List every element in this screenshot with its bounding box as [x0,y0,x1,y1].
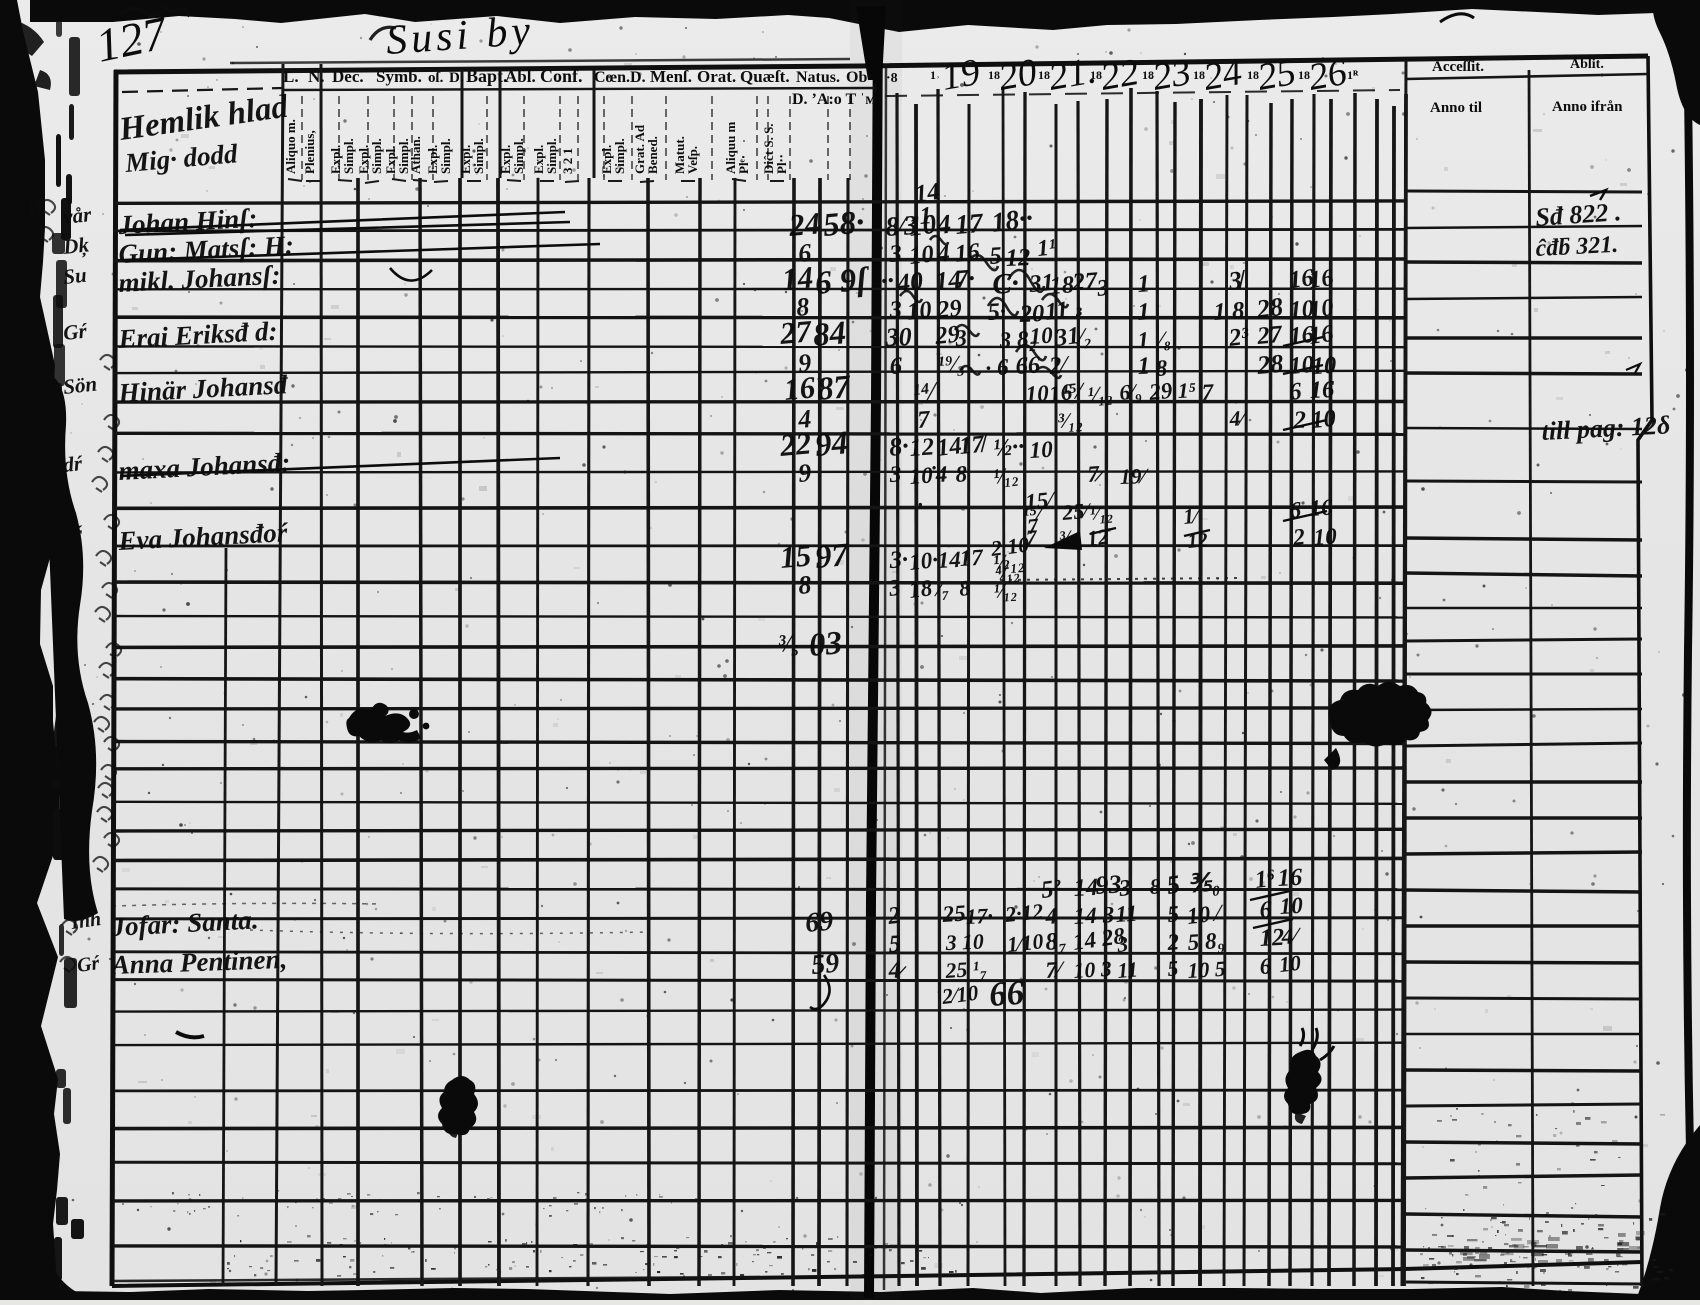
svg-text:17: 17 [959,545,985,572]
svg-text:Orat.: Orat. [697,67,736,86]
svg-text:16: 16 [1309,494,1334,522]
svg-text:26: 26 [1305,51,1350,99]
svg-text:Bapt.: Bapt. [466,66,508,86]
svg-text:10 5: 10 5 [1187,957,1227,983]
svg-text:18··: 18·· [990,201,1035,237]
svg-text:17: 17 [954,207,985,240]
svg-text:14: 14 [781,259,815,297]
svg-text:69: 69 [804,906,835,939]
svg-text:66: 66 [988,973,1026,1014]
svg-text:10: 10 [1310,405,1337,434]
svg-text:27: 27 [1255,321,1285,350]
svg-text:10: 10 [1029,437,1054,464]
svg-text:4: 4 [1044,903,1058,930]
svg-text:³⁄₁₂: ³⁄₁₂ [1057,408,1083,433]
svg-text:Dec.: Dec. [332,67,364,86]
svg-text:1ᴿ: 1ᴿ [1347,68,1359,82]
svg-text:1: 1 [1137,327,1150,354]
svg-text:8: 8 [1149,874,1161,899]
svg-text:12: 12 [1086,524,1111,551]
svg-text:10: 10 [1278,951,1302,977]
svg-text:Simpl.: Simpl. [544,138,559,174]
svg-text:Aliquo m.: Aliquo m. [283,119,298,174]
svg-text:Conf.: Conf. [540,66,583,86]
svg-text:¹⁄₁₂: ¹⁄₁₂ [1089,501,1114,525]
svg-text:3·: 3· [888,546,909,574]
svg-text:16: 16 [1307,320,1336,350]
svg-text:14: 14 [937,547,961,574]
svg-text:10: 10 [1025,381,1050,408]
svg-text:87: 87 [816,369,854,408]
svg-text:31: 31 [1052,322,1081,352]
svg-text:· 6: · 6 [984,354,1010,382]
svg-text:1: 1 [1137,353,1150,380]
svg-text:Natus.: Natus. [796,69,840,86]
svg-text:10: 10 [1029,323,1054,350]
svg-text:·8: ·8 [886,71,898,86]
svg-text:6: 6 [1259,896,1274,924]
svg-text:8: 8 [797,570,812,600]
svg-text:17·: 17· [965,904,993,929]
svg-text:Su: Su [62,263,88,289]
svg-text:Menſ.: Menſ. [650,67,692,86]
svg-text:5: 5 [1166,901,1180,928]
svg-text:D.: D. [449,70,464,86]
svg-text:20: 20 [995,51,1040,99]
svg-text:Veſp.: Veſp. [685,146,700,174]
svg-text:6: 6 [1259,954,1272,980]
svg-text:L.: L. [283,67,299,86]
svg-text:1¹: 1¹ [1036,234,1057,262]
svg-text:3: 3 [888,461,902,488]
svg-text:10: 10 [1279,893,1304,920]
svg-text:Dķ: Dķ [61,232,91,260]
svg-text:28: 28 [1255,349,1285,380]
svg-text:Sön: Sön [62,372,98,399]
svg-text:16: 16 [783,369,817,407]
svg-text:11: 11 [1044,297,1070,326]
svg-text:25: 25 [941,900,967,928]
svg-text:Bened.: Bened. [645,136,660,174]
svg-text:16: 16 [1277,864,1304,892]
svg-text:19: 19 [938,51,983,99]
svg-text:5: 5 [989,242,1003,270]
svg-text:½··: ½·· [993,433,1026,462]
svg-text:7·: 7· [954,263,976,293]
svg-text:Anna Pentinen,: Anna Pentinen, [109,944,288,980]
svg-text:6 9ſ: 6 9ſ [814,261,872,302]
svg-text:Quæſt.: Quæſt. [740,67,790,86]
svg-text:ĉđƃ 321.: ĉđƃ 321. [1535,232,1619,262]
svg-text:1: 1 [1137,298,1151,326]
svg-text:1⁵: 1⁵ [1177,378,1196,403]
svg-text:3 2 1: 3 2 1 [560,148,575,174]
svg-text:Sđ 822 .: Sđ 822 . [1534,197,1622,232]
svg-text:10: 10 [1313,524,1338,551]
svg-text:27: 27 [778,313,814,351]
svg-text:2·12: 2·12 [1003,899,1044,927]
svg-text:3: 3 [888,296,903,324]
svg-text:5 8₉: 5 8₉ [1187,928,1226,956]
svg-text:6: 6 [889,352,903,380]
svg-text:D. ’A:o T ˈᴍ: D. ’A:o T ˈᴍ [792,91,876,108]
svg-text:58·: 58· [822,205,866,244]
svg-text:oſ.: oſ. [428,70,444,86]
svg-text:Ablit.: Ablit. [1570,57,1604,72]
svg-text:Simpl.: Simpl. [438,138,453,174]
svg-text:¹⁄₁₂: ¹⁄₁₂ [1087,381,1114,407]
svg-text:Ob: Ob [846,69,867,86]
svg-text:Simpl.: Simpl. [471,138,486,174]
svg-text:¹⁹⁄₃: ¹⁹⁄₃ [937,351,965,378]
svg-text:11: 11 [1116,957,1138,983]
svg-text:18: 18 [908,575,935,604]
svg-text:1˒: 1˒ [930,68,940,82]
svg-text:29: 29 [935,295,963,325]
svg-text:2: 2 [1166,929,1181,956]
svg-text:9: 9 [797,458,812,488]
svg-text:5: 5 [1167,956,1180,981]
svg-text:28: 28 [1254,292,1285,324]
svg-text:Plᵉ‧: Plᵉ‧ [736,155,751,174]
svg-text:10 3: 10 3 [1073,957,1113,983]
svg-text:25: 25 [1254,51,1299,99]
svg-text:³⁄₅: ³⁄₅ [777,629,800,658]
svg-text:16: 16 [1307,264,1335,294]
svg-text:2⁄10: 2⁄10 [940,981,980,1009]
svg-text:Anno til: Anno til [1430,100,1482,116]
svg-text:25 ¹₇: 25 ¹₇ [944,956,988,983]
svg-text:Athan.: Athan. [408,136,423,174]
svg-text:29: 29 [1147,378,1174,406]
svg-text:2³: 2³ [1226,323,1251,352]
svg-text:N.: N. [308,67,325,86]
svg-text:Gŕ: Gŕ [62,318,90,344]
svg-text:1⁄10: 1⁄10 [1006,929,1045,957]
svg-text:8·: 8· [888,431,911,462]
svg-text:22: 22 [1097,51,1142,99]
svg-text:03: 03 [808,625,844,664]
svg-text:Plenius,: Plenius, [302,130,317,174]
svg-text:3: 3 [887,240,902,268]
svg-text:Cœn.D.: Cœn.D. [594,69,646,86]
svg-text:1 8: 1 8 [1213,297,1245,326]
svg-text:Simpl.: Simpl. [612,138,627,174]
svg-text:5: 5 [888,931,901,958]
svg-text:1: 1 [1137,270,1151,298]
svg-text:84: 84 [812,315,848,354]
svg-text:⅗₀: ⅗₀ [1187,869,1221,898]
svg-text:⁴⁄₁₂: ⁴⁄₁₂ [994,560,1021,585]
svg-text:¹⁄₁₂: ¹⁄₁₂ [992,462,1020,489]
svg-text:Acceſſit.: Acceſſit. [1432,59,1484,75]
svg-text:10: 10 [908,240,935,269]
svg-text:vår: vår [62,202,93,229]
svg-text:23: 23 [1149,51,1194,99]
svg-text:97: 97 [814,537,852,576]
svg-text:10·: 10· [908,547,940,576]
svg-text:12: 12 [909,433,935,462]
svg-text:2: 2 [1292,407,1306,434]
svg-text:16: 16 [1309,376,1335,404]
svg-text:Simpl.: Simpl. [511,138,526,174]
svg-text:1: 1 [918,202,932,230]
svg-text:6⁄₉: 6⁄₉ [1118,379,1142,405]
svg-text:Simpl.: Simpl. [341,138,356,174]
svg-text:24: 24 [1200,51,1245,99]
svg-text:94: 94 [814,425,850,464]
svg-text:30: 30 [884,322,912,352]
svg-text:Gŕ: Gŕ [76,952,102,977]
svg-text:Simpl.: Simpl. [369,138,384,174]
svg-text:4: 4 [934,462,948,489]
svg-text:Abl.: Abl. [505,67,536,86]
svg-text:8₇: 8₇ [1044,927,1067,956]
svg-text:1⁶: 1⁶ [1253,864,1277,893]
svg-text:Symb.: Symb. [376,67,422,86]
svg-text:24: 24 [787,205,822,243]
svg-text:8: 8 [955,461,969,488]
svg-text:Pl‧‧: Pl‧‧ [774,154,789,174]
svg-text:5²: 5² [1040,875,1063,904]
svg-text:2 10: 2 10 [989,532,1031,561]
svg-text:3 10: 3 10 [944,930,984,955]
svg-text:Anno ifrån: Anno ifrån [1552,99,1623,115]
